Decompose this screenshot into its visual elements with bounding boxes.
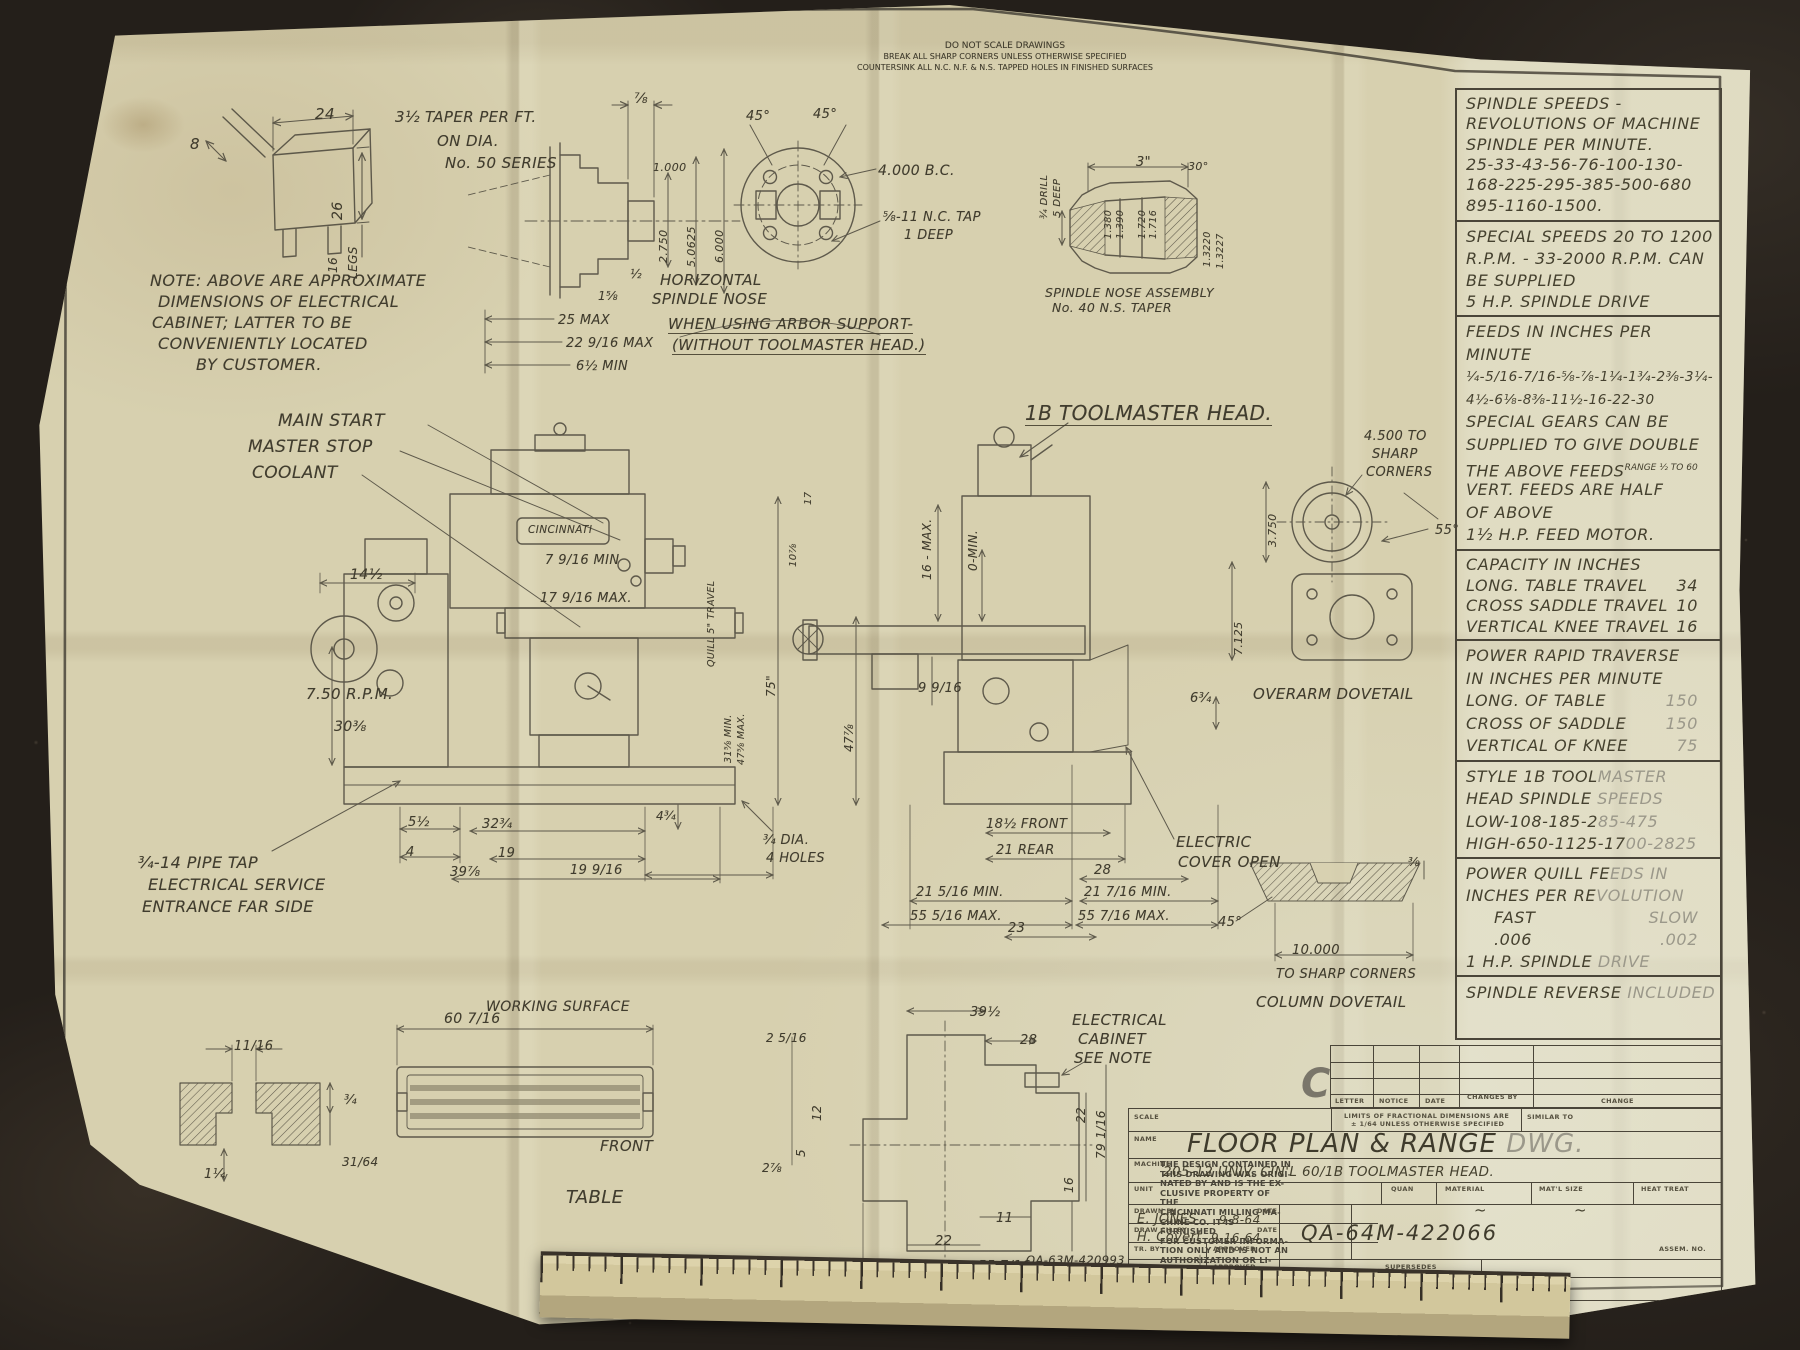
spec-block-7: SPINDLE REVERSE INCLUDED — [1457, 975, 1720, 1042]
dim-label: 75" — [764, 675, 778, 697]
spec-line: SPINDLE REVERSE INCLUDED — [1466, 981, 1714, 1040]
spec-line: FASTSLOW — [1466, 907, 1714, 929]
quan-label: QUAN — [1391, 1185, 1414, 1193]
dim-label: 1.716 — [1148, 210, 1159, 239]
dim-label: 24 — [315, 105, 335, 123]
dim-label: ¾ DRILL — [1039, 175, 1050, 219]
matl-size-label: MAT'L SIZE — [1539, 1185, 1583, 1193]
dim-label: 21 7/16 MIN. — [1084, 885, 1172, 900]
dim-label: TO SHARP CORNERS — [1276, 967, 1416, 982]
spec-line: .006.002 — [1466, 929, 1714, 951]
dim-label: 26 — [330, 201, 346, 220]
dim-label: ELECTRICAL SERVICE — [148, 875, 326, 894]
table-slot-section — [180, 1045, 330, 1181]
dim-label: ¾ DIA. — [763, 833, 809, 848]
dim-label: 4 — [406, 845, 415, 860]
spec-line: FEEDS IN INCHES PER — [1466, 321, 1714, 344]
spec-line: 25-33-43-56-76-100-130- — [1466, 155, 1714, 175]
drawing-number: QA-64M-422066 — [1301, 1221, 1498, 1245]
dim-label: COLUMN DOVETAIL — [1256, 993, 1406, 1011]
dim-label: 32¾ — [482, 817, 512, 832]
dim-label: 30⅜ — [334, 719, 367, 735]
drawn-by-value: E. JONES — [1137, 1212, 1197, 1227]
draw-ch-value: H. Covert — [1137, 1230, 1202, 1245]
dim-label: 16 - MAX. — [920, 519, 934, 580]
dim-label: 4.500 TO — [1364, 429, 1427, 444]
material-label: MATERIAL — [1445, 1185, 1485, 1193]
spindle-nose-section — [468, 101, 740, 298]
spec-line: SPECIAL SPEEDS 20 TO 1200 — [1466, 226, 1714, 248]
dim-label: ON DIA. — [437, 132, 499, 150]
spec-line: MINUTE — [1466, 344, 1714, 367]
heat-treat-label: HEAT TREAT — [1641, 1185, 1689, 1193]
dim-label: 14½ — [350, 567, 383, 583]
dim-label: HORIZONTAL — [660, 271, 762, 289]
dim-label: ELECTRICAL — [1072, 1011, 1167, 1029]
dim-label: SPINDLE NOSE ASSEMBLY — [1045, 285, 1214, 300]
spec-line: 168-225-295-385-500-680 — [1466, 175, 1714, 195]
draw-ch-date: 9-16-64 — [1211, 1231, 1261, 1245]
assem-no-label: ASSEM. NO. — [1659, 1245, 1706, 1253]
drawn-date: 9-8-64 — [1219, 1213, 1261, 1227]
dim-label: 25 MAX — [558, 313, 610, 328]
toolmaster-head-detail — [1232, 467, 1438, 660]
dim-label: QUILL 5" TRAVEL — [706, 581, 717, 668]
material-value: ~ — [1474, 1201, 1487, 1219]
spec-block-4: POWER RAPID TRAVERSEIN INCHES PER MINUTE… — [1457, 639, 1720, 760]
spec-line: VERT. FEEDS ARE HALF — [1466, 479, 1714, 502]
dim-label: 5.0625 — [685, 226, 698, 267]
spec-line: LOW-108-185-285-475 — [1466, 811, 1714, 833]
dim-label: WORKING SURFACE — [486, 999, 630, 1015]
dim-label: 2.750 — [657, 230, 670, 264]
scale-label: SCALE — [1134, 1113, 1159, 1121]
spec-block-3: CAPACITY IN INCHESLONG. TABLE TRAVEL34CR… — [1457, 549, 1720, 639]
dim-label: DO NOT SCALE DRAWINGS — [945, 41, 1065, 51]
drawing-title: FLOOR PLAN & RANGE DWG. — [1187, 1129, 1584, 1159]
spec-line: REVOLUTIONS OF MACHINE — [1466, 114, 1714, 134]
dim-label: 1.380 — [1103, 210, 1114, 239]
dim-label: BREAK ALL SHARP CORNERS UNLESS OTHERWISE… — [883, 52, 1126, 61]
dim-label: 1.390 — [1115, 210, 1126, 239]
electrical-cabinet-sketch — [206, 109, 372, 257]
dim-label: ¾ — [344, 1093, 357, 1108]
dim-label: 22 — [1074, 1107, 1088, 1123]
dim-label: 6¾ — [1190, 691, 1212, 706]
dim-label: ⅜ — [1408, 855, 1420, 869]
dim-label: FRONT — [600, 1137, 653, 1155]
dim-label: NOTE: ABOVE ARE APPROXIMATE — [150, 271, 426, 290]
dim-label: 12 — [810, 1105, 824, 1121]
dim-label: 6½ MIN — [576, 359, 628, 374]
dim-label: WHEN USING ARBOR SUPPORT- — [668, 315, 913, 334]
dim-label: CINCINNATI — [528, 524, 592, 536]
dim-label: 45° — [813, 107, 837, 122]
spec-line: 895-1160-1500. — [1466, 196, 1714, 216]
dim-label: (WITHOUT TOOLMASTER HEAD.) — [672, 336, 926, 355]
dim-label: ELECTRIC — [1176, 833, 1251, 851]
dim-label: SEE NOTE — [1074, 1049, 1152, 1067]
machine-value: 205-12 UNIV. CIN'L 60/1B TOOLMASTER HEAD… — [1163, 1164, 1494, 1180]
dim-label: 31/64 — [342, 1155, 379, 1169]
dim-label: SPINDLE NOSE — [652, 290, 767, 308]
revision-letter: C — [1301, 1061, 1331, 1107]
dim-label: 2 5/16 — [766, 1031, 807, 1045]
dim-label: BY CUSTOMER. — [196, 355, 322, 374]
dim-label: 9 9/16 — [918, 681, 962, 696]
dim-label: 22 9/16 MAX — [566, 336, 653, 351]
dim-label: 5½ — [408, 815, 430, 830]
spec-line: 1 H.P. SPINDLE DRIVE — [1466, 951, 1714, 973]
spec-block-0: SPINDLE SPEEDS -REVOLUTIONS OF MACHINESP… — [1457, 90, 1720, 220]
dim-label: 17 9/16 MAX. — [540, 591, 632, 606]
dim-label: 7 9/16 MIN — [545, 553, 620, 568]
dim-label: COUNTERSINK ALL N.C. N.F. & N.S. TAPPED … — [857, 63, 1153, 72]
dim-label: 1.720 — [1137, 210, 1148, 239]
spec-block-2: FEEDS IN INCHES PERMINUTE¼-5/16-7/16-⅝-⅞… — [1457, 315, 1720, 549]
dim-label: 18½ FRONT — [986, 817, 1067, 832]
dim-label: 4 HOLES — [766, 851, 825, 866]
rev-col-date: DATE — [1425, 1097, 1445, 1105]
spec-line: POWER QUILL FEEDS IN — [1466, 863, 1714, 885]
rev-col-notice: NOTICE — [1379, 1097, 1408, 1105]
dim-label: 7.125 — [1232, 622, 1245, 656]
dim-label: 11 — [996, 1211, 1013, 1226]
dim-label: 10⅞ — [788, 543, 799, 567]
dim-label: ½ — [630, 267, 642, 281]
dim-label: DIMENSIONS OF ELECTRICAL — [158, 292, 399, 311]
dim-label: 23 — [1008, 921, 1025, 936]
spec-line: CROSS SADDLE TRAVEL10 — [1466, 596, 1714, 617]
spec-line: VERTICAL OF KNEE75 — [1466, 735, 1714, 758]
dim-label: 47⅞ — [842, 724, 856, 752]
spec-line: BE SUPPLIED — [1466, 270, 1714, 292]
name-label: NAME — [1134, 1135, 1157, 1143]
unit-label: UNIT — [1134, 1185, 1153, 1193]
toolmaster-leader — [1020, 423, 1068, 457]
spec-line: SPINDLE PER MINUTE. — [1466, 135, 1714, 155]
dim-label: 55 5/16 MAX. — [910, 909, 1002, 924]
dim-label: OVERARM DOVETAIL — [1253, 685, 1414, 703]
dim-label: 30° — [1188, 160, 1209, 173]
spec-line: OF ABOVE — [1466, 502, 1714, 525]
dim-label: 39⅞ — [450, 865, 480, 880]
dim-label: 1¼ — [204, 1167, 226, 1182]
limits-line2: ± 1/64 UNLESS OTHERWISE SPECIFIED — [1351, 1120, 1504, 1128]
dim-label: 8 — [190, 135, 200, 153]
dim-label: 21 5/16 MIN. — [916, 885, 1004, 900]
revision-table: LETTER NOTICE DATE CHANGES BY CHANGE — [1330, 1045, 1722, 1108]
dim-label: ⅞ — [634, 91, 648, 107]
dim-label: 7.50 R.P.M. — [306, 685, 393, 703]
dim-label: ⅝-11 N.C. TAP — [883, 210, 981, 225]
approved-label-1: APPROVED — [1213, 1245, 1256, 1253]
spec-line: VERTICAL KNEE TRAVEL16 — [1466, 617, 1714, 638]
dim-label: 4¾ — [656, 809, 676, 823]
spec-line: IN INCHES PER MINUTE — [1466, 668, 1714, 691]
spec-line: ¼-5/16-7/16-⅝-⅞-1¼-1¾-2⅜-3¼- — [1466, 366, 1714, 389]
spec-line: R.P.M. - 33-2000 R.P.M. CAN — [1466, 248, 1714, 270]
spec-line: LONG. TABLE TRAVEL34 — [1466, 576, 1714, 597]
dim-label: 5 DEEP — [1052, 179, 1063, 217]
spec-line: POWER RAPID TRAVERSE — [1466, 645, 1714, 668]
limits-line1: LIMITS OF FRACTIONAL DIMENSIONS ARE — [1344, 1112, 1509, 1120]
dim-label: 16 — [1062, 1177, 1076, 1193]
spec-line: HEAD SPINDLE SPEEDS — [1466, 788, 1714, 810]
dim-label: 39½ — [970, 1005, 1000, 1020]
dim-label: No. 40 N.S. TAPER — [1052, 300, 1172, 315]
dim-label: 17 — [803, 491, 814, 505]
dim-label: 10.000 — [1292, 943, 1340, 958]
dim-label: TABLE — [566, 1187, 623, 1208]
dim-label: 19 9/16 — [570, 863, 623, 878]
spec-block-1: SPECIAL SPEEDS 20 TO 1200R.P.M. - 33-200… — [1457, 220, 1720, 315]
rev-col-letter: LETTER — [1335, 1097, 1364, 1105]
spec-line: SUPPLIED TO GIVE DOUBLE — [1466, 434, 1714, 457]
spec-line: SPECIAL GEARS CAN BE — [1466, 411, 1714, 434]
rev-col-changes-by: CHANGES BY — [1467, 1094, 1527, 1101]
spec-block-6: POWER QUILL FEEDS ININCHES PER REVOLUTIO… — [1457, 857, 1720, 975]
spindle-nose-bolt-circle — [734, 125, 880, 269]
photo-of-engineering-drawing: { "document": { "type": "engineering-dra… — [0, 0, 1800, 1350]
spec-line: SPINDLE SPEEDS - — [1466, 94, 1714, 114]
dim-label: 45° — [1218, 915, 1242, 930]
dim-label: 21 REAR — [996, 843, 1055, 858]
dim-label: COOLANT — [252, 463, 338, 483]
dim-label: 1.3227 — [1215, 233, 1226, 269]
dim-label: 1 DEEP — [904, 228, 953, 243]
spec-line: CAPACITY IN INCHES — [1466, 555, 1714, 576]
dim-label: 1.000 — [653, 161, 687, 174]
spec-line: 5 H.P. SPINDLE DRIVE — [1466, 291, 1714, 313]
dim-label: 1⅝ — [598, 289, 618, 303]
dim-label: 22 — [935, 1234, 952, 1249]
dim-label: ¾-14 PIPE TAP — [138, 853, 258, 872]
dim-label: 45° — [746, 109, 770, 124]
spec-line: 1½ H.P. FEED MOTOR. — [1466, 524, 1714, 547]
dim-label: 28 — [1020, 1033, 1037, 1048]
dim-label: 3.750 — [1266, 514, 1279, 548]
spec-line: LONG. OF TABLE150 — [1466, 690, 1714, 713]
dim-label: 55 7/16 MAX. — [1078, 909, 1170, 924]
dim-label: 3½ TAPER PER FT. — [395, 108, 537, 126]
dim-label: 28 — [1094, 863, 1111, 878]
dim-label: MAIN START — [278, 411, 385, 431]
dim-label: MASTER STOP — [248, 437, 373, 457]
spindle-nose-assembly — [1062, 163, 1197, 273]
dim-label: 6.000 — [713, 230, 726, 264]
specification-panel: SPINDLE SPEEDS -REVOLUTIONS OF MACHINESP… — [1455, 88, 1722, 1040]
dim-label: CORNERS — [1366, 465, 1432, 480]
tr-by-label: TR. BY — [1134, 1245, 1160, 1253]
spec-block-5: STYLE 1B TOOLMASTERHEAD SPINDLE SPEEDSLO… — [1457, 760, 1720, 857]
dim-label: SHARP — [1372, 447, 1418, 462]
dim-label: 0-MIN. — [966, 530, 980, 571]
spec-line: INCHES PER REVOLUTION — [1466, 885, 1714, 907]
dim-label: 31⅝ MIN. — [723, 714, 734, 763]
machine-front-view — [311, 423, 743, 804]
spec-line: THE ABOVE FEEDSRANGE ½ TO 60 — [1466, 457, 1714, 480]
spec-line: STYLE 1B TOOLMASTER — [1466, 766, 1714, 788]
matl-size-value: ~ — [1574, 1201, 1587, 1219]
dim-label: ENTRANCE FAR SIDE — [142, 897, 314, 916]
dim-label: 19 — [498, 846, 515, 861]
dim-label: 47⅝ MAX. — [736, 713, 747, 765]
similar-to-label: SIMILAR TO — [1527, 1113, 1573, 1121]
dim-label: CABINET — [1078, 1030, 1146, 1048]
rev-col-change: CHANGE — [1601, 1097, 1634, 1105]
dim-label: 1.3220 — [1202, 231, 1213, 267]
drawing-sheet: DO NOT SCALE DRAWINGSBREAK ALL SHARP COR… — [20, 5, 1780, 1335]
dim-label: 79 1/16 — [1094, 1110, 1108, 1159]
spec-line: CROSS OF SADDLE150 — [1466, 713, 1714, 736]
dim-label: 2⅞ — [762, 1161, 782, 1175]
dim-label: 11/16 — [234, 1039, 273, 1054]
dim-label: 1B TOOLMASTER HEAD. — [1025, 401, 1272, 426]
spec-line: 4½-6⅛-8⅜-11½-16-22-30 — [1466, 389, 1714, 412]
table-front-view — [397, 1025, 653, 1137]
dim-label: CONVENIENTLY LOCATED — [158, 334, 368, 353]
spec-line: HIGH-650-1125-1700-2825 — [1466, 833, 1714, 855]
dim-label: No. 50 SERIES — [445, 154, 557, 172]
dim-label: 5 — [794, 1149, 808, 1157]
dim-label: 4.000 B.C. — [878, 163, 955, 179]
dim-label: CABINET; LATTER TO BE — [152, 313, 352, 332]
dim-label: COVER OPEN — [1178, 853, 1281, 871]
dim-label: 3" — [1136, 155, 1151, 170]
